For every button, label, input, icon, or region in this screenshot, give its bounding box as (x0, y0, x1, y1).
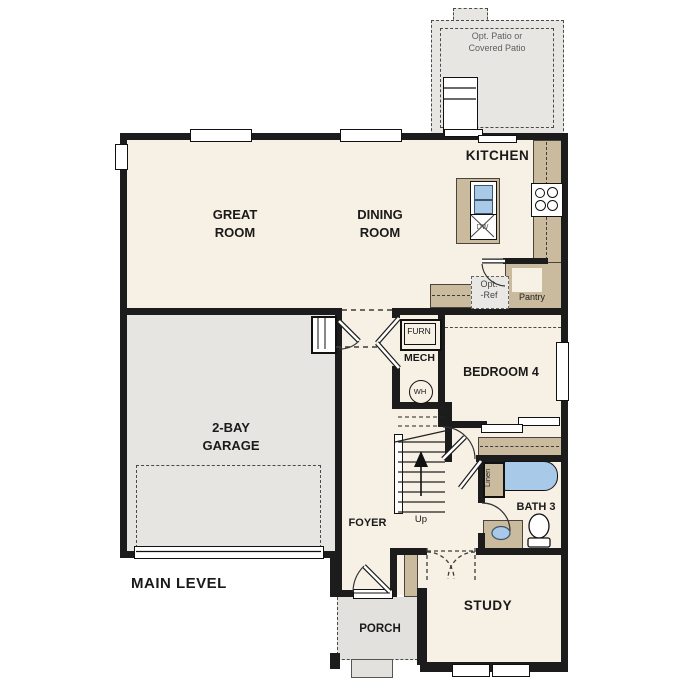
front-door-arc (353, 566, 364, 592)
stairs-upper-treads-dashed (398, 408, 445, 426)
vanity-sink (492, 527, 510, 540)
patio-steps-lines (444, 88, 476, 99)
pantry-door-arc (482, 264, 505, 286)
garage-landing-steps (318, 318, 325, 349)
study-optional-doors (427, 548, 475, 580)
toilet (528, 514, 550, 547)
bath3-door-arc (482, 503, 510, 531)
garage-entry-door-arc (339, 341, 359, 349)
annotation-overlay (0, 0, 687, 687)
stair-break-line (395, 430, 449, 442)
floor-plan: Opt. Patio or Covered Patio (0, 0, 687, 687)
dishwasher-x-mark (471, 215, 494, 237)
stairs-up-arrow-head (414, 451, 428, 467)
